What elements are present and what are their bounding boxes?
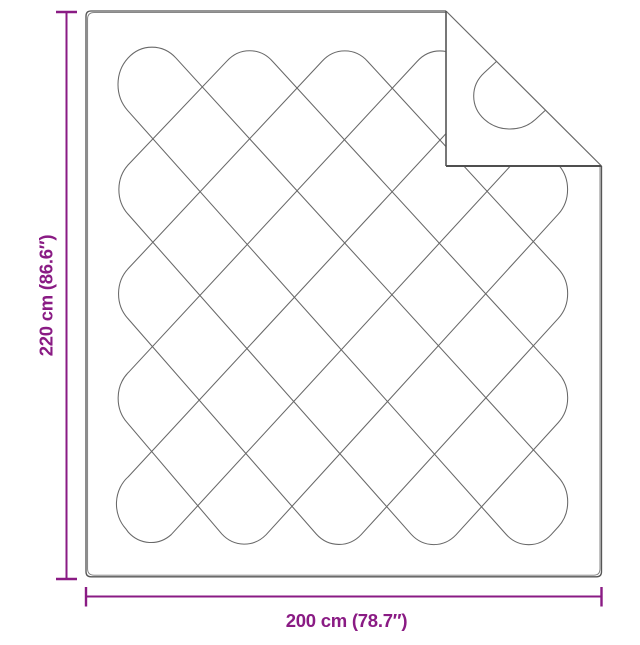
svg-text:220 cm (86.6″): 220 cm (86.6″): [36, 235, 57, 357]
svg-text:200 cm (78.7″): 200 cm (78.7″): [286, 610, 408, 631]
